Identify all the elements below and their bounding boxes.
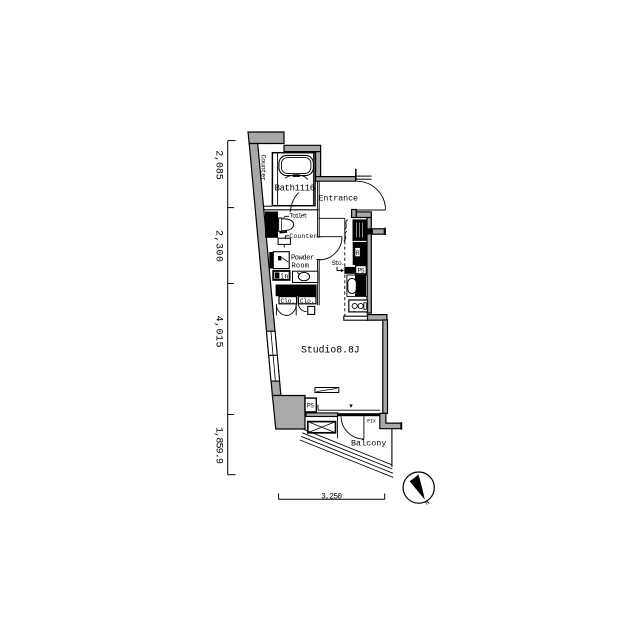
svg-text:Balcony: Balcony [351, 438, 386, 448]
svg-text:Sto.: Sto. [332, 260, 345, 267]
svg-text:Powder: Powder [291, 254, 314, 262]
svg-text:Entrance: Entrance [319, 194, 359, 203]
svg-text:Counter: Counter [289, 233, 317, 240]
svg-text:Toilet: Toilet [289, 213, 307, 220]
svg-text:1,859.9: 1,859.9 [213, 427, 224, 464]
svg-text:4,015: 4,015 [213, 316, 224, 348]
svg-text:3,250: 3,250 [321, 493, 342, 501]
svg-text:Studio8.8J: Studio8.8J [301, 344, 360, 355]
svg-text:Counter: Counter [259, 154, 267, 181]
svg-text:R: R [356, 250, 360, 257]
svg-text:PS: PS [358, 268, 365, 275]
svg-text:Clo.: Clo. [281, 298, 296, 305]
svg-text:L: L [275, 273, 279, 280]
svg-text:FIX: FIX [367, 418, 377, 424]
svg-text:2,300: 2,300 [213, 230, 224, 262]
svg-text:PS: PS [307, 403, 315, 410]
svg-text:Room: Room [292, 263, 310, 271]
svg-text:Clo.: Clo. [300, 298, 315, 305]
svg-text:in: in [280, 274, 289, 282]
svg-text:2,085: 2,085 [213, 150, 224, 180]
svg-text:Bath1116: Bath1116 [275, 183, 315, 193]
